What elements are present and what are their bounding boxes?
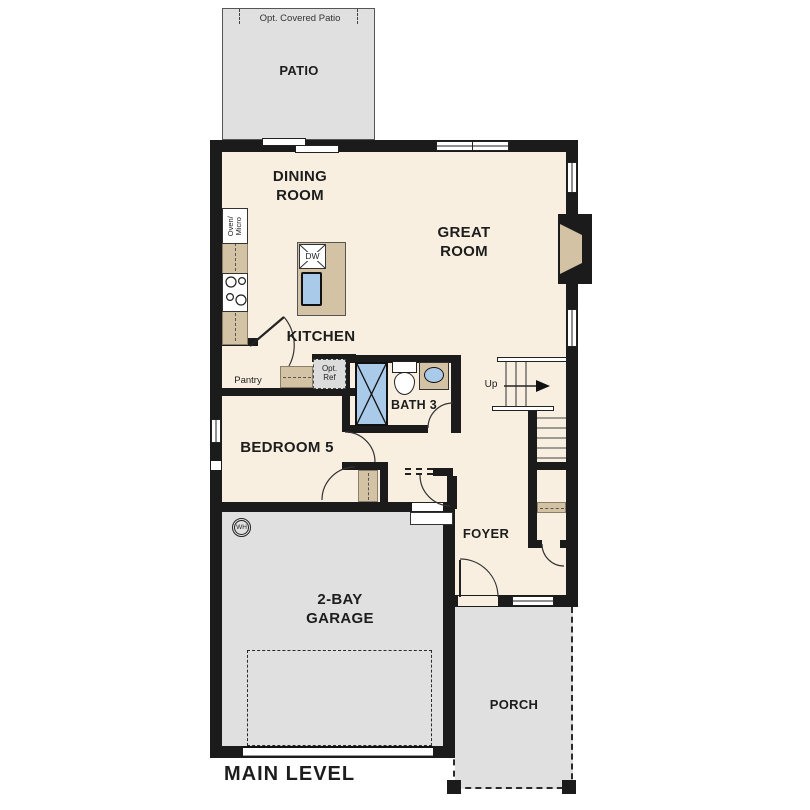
sliding-door-panel-inner bbox=[295, 145, 339, 153]
cooktop bbox=[222, 273, 248, 312]
great-room-top-window-1 bbox=[436, 141, 473, 151]
dishwasher-box: DW bbox=[299, 244, 326, 269]
kitchen-counter-south bbox=[280, 366, 313, 388]
optional-opening-dashed bbox=[405, 468, 433, 475]
wall-bath-east bbox=[451, 355, 461, 433]
patio-label: PATIO bbox=[273, 63, 325, 79]
garage-entry-threshold bbox=[412, 502, 443, 512]
wall-left bbox=[210, 140, 222, 758]
dishwasher-label: DW bbox=[304, 252, 320, 261]
bedroom5-closet-shelf bbox=[358, 470, 378, 502]
bedroom5-label: BEDROOM 5 bbox=[234, 439, 340, 458]
counter-centerline bbox=[283, 377, 311, 378]
great-room-label: GREAT ROOM bbox=[420, 224, 508, 262]
shelf-centerline bbox=[540, 508, 564, 509]
kitchen-label: KITCHEN bbox=[282, 328, 360, 347]
wall-hall-stub bbox=[433, 468, 453, 476]
wall-staircloset-door-right bbox=[560, 540, 566, 548]
shelf-centerline bbox=[368, 473, 369, 500]
wall-right bbox=[566, 140, 578, 607]
island-sink bbox=[301, 272, 322, 306]
patio-option-note: Opt. Covered Patio bbox=[240, 14, 360, 24]
optional-refrigerator: Opt. Ref bbox=[313, 359, 346, 389]
pantry-label: Pantry bbox=[230, 376, 266, 386]
stair-closet-shelf bbox=[537, 502, 566, 513]
up-label: Up bbox=[480, 379, 502, 390]
great-room-right-window-1 bbox=[567, 162, 577, 193]
great-room-right-window-2 bbox=[567, 309, 577, 347]
wall-stairs-south bbox=[528, 462, 566, 470]
wall-porch-left bbox=[443, 595, 455, 748]
bath-sink-basin bbox=[424, 367, 444, 383]
wall-garage-north-west bbox=[212, 502, 412, 512]
bedroom5-window bbox=[211, 419, 221, 443]
garage-door-opening bbox=[243, 746, 433, 756]
oven-micro-label: Oven/ Micro bbox=[227, 216, 244, 236]
floor-plan: Oven/ Micro DW Opt. Ref WH bbox=[0, 0, 810, 810]
wall-kitchen-south bbox=[212, 388, 356, 396]
garage-label: 2-BAY GARAGE bbox=[294, 591, 386, 629]
garage-entry-step bbox=[410, 512, 453, 525]
left-wall-break bbox=[211, 461, 221, 470]
wall-bath-south bbox=[348, 425, 428, 433]
oven-micro: Oven/ Micro bbox=[222, 208, 248, 244]
porch-post-right bbox=[562, 780, 576, 794]
stair-landing-edge-bottom bbox=[492, 406, 554, 411]
front-door-opening bbox=[458, 596, 498, 606]
main-level-title: MAIN LEVEL bbox=[224, 762, 394, 787]
great-room-top-window-2 bbox=[472, 141, 509, 151]
dining-room-label: DINING ROOM bbox=[254, 168, 346, 206]
porch-post-left bbox=[447, 780, 461, 794]
wall-vestibule-east bbox=[447, 476, 457, 509]
wall-staircloset-door-left bbox=[528, 540, 542, 548]
porch-label: PORCH bbox=[487, 697, 541, 713]
stair-landing-edge-top bbox=[497, 357, 567, 362]
garage-door-swing-area bbox=[247, 650, 432, 746]
bath3-label: BATH 3 bbox=[387, 398, 441, 414]
foyer-label: FOYER bbox=[460, 526, 512, 542]
foyer-front-window bbox=[512, 596, 554, 606]
wall-stairs-west bbox=[528, 410, 537, 545]
water-heater-inner-ring bbox=[234, 520, 249, 535]
water-heater: WH bbox=[232, 518, 251, 537]
shower bbox=[355, 362, 388, 426]
opt-ref-label: Opt. Ref bbox=[322, 365, 337, 383]
